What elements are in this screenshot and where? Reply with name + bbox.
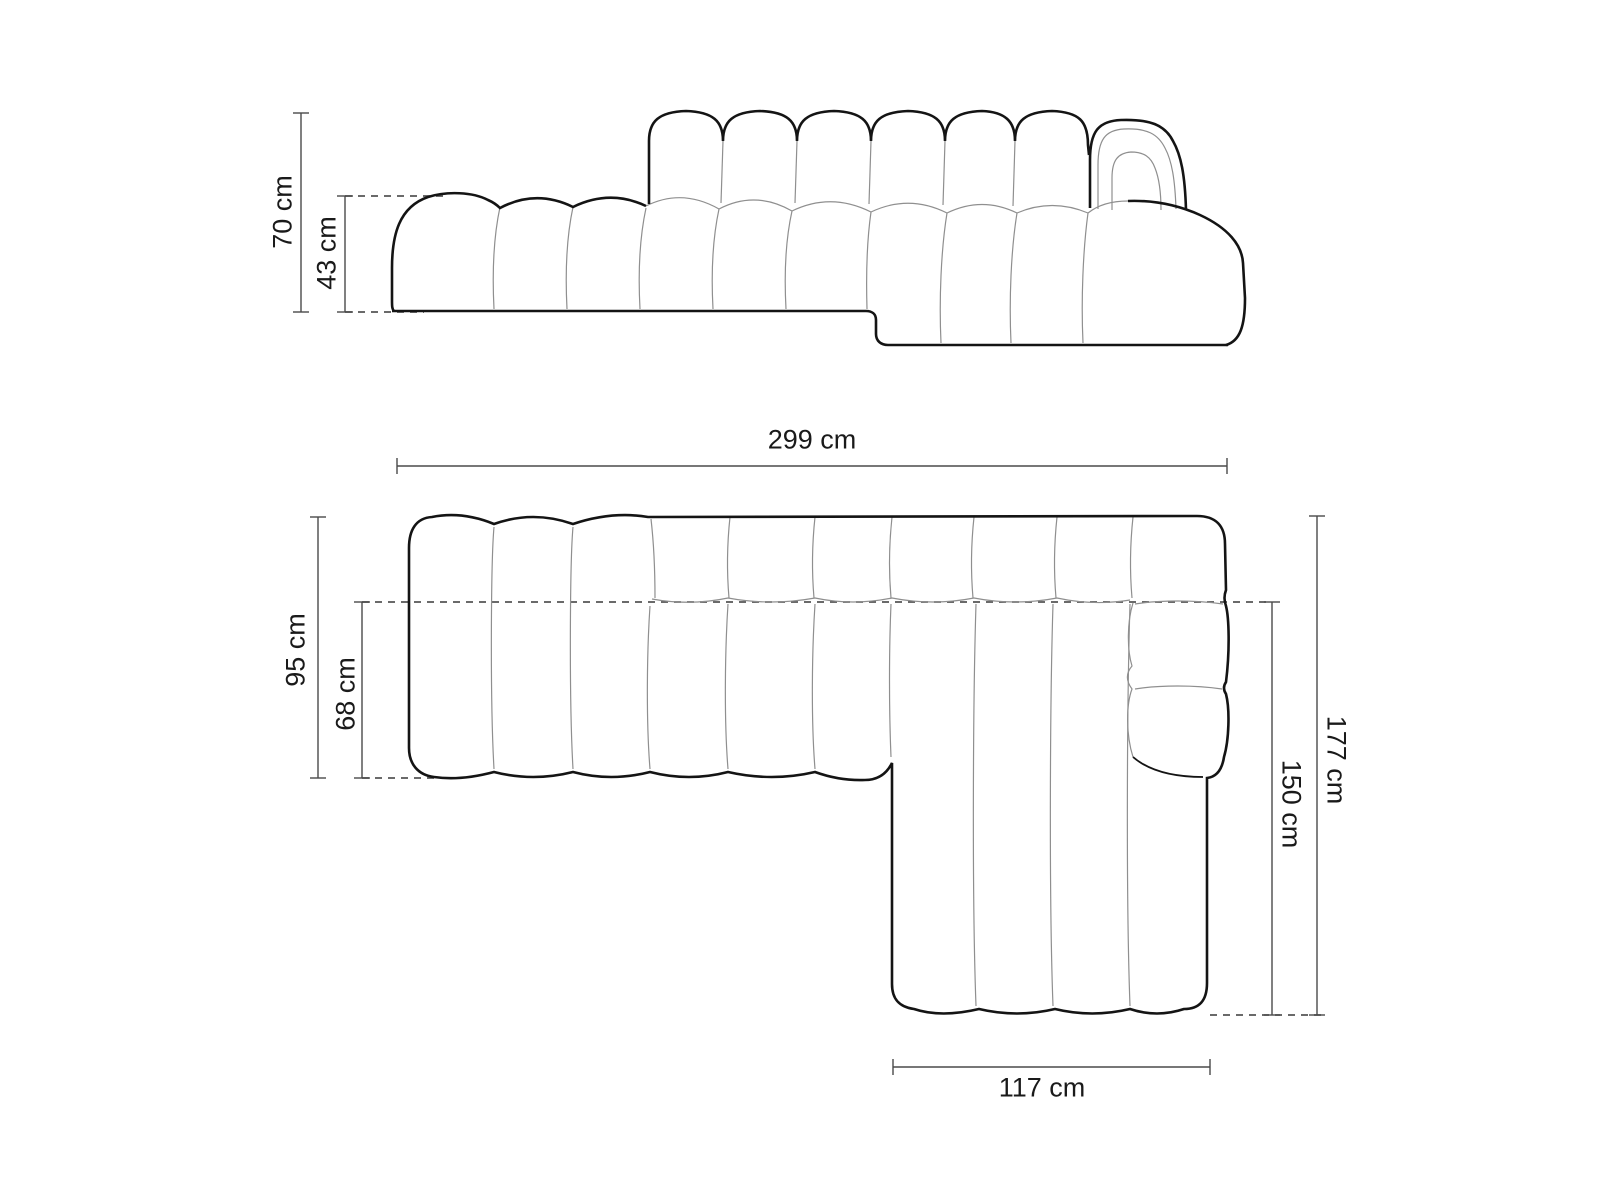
elevation-base-line xyxy=(392,311,1228,345)
dimension-label-chaise-width: 117 cm xyxy=(999,1075,1086,1102)
dimension-line-95cm xyxy=(310,517,326,778)
dimension-lines xyxy=(293,113,1325,1075)
plan-seams xyxy=(491,517,1223,1006)
sofa-dimension-diagram: 70 cm 43 cm 299 cm 95 cm 68 cm 177 cm 15… xyxy=(0,0,1600,1200)
dimension-label-seat-height: 43 cm xyxy=(314,216,341,290)
front-elevation-drawing xyxy=(392,111,1245,345)
dimension-label-total-depth: 177 cm xyxy=(1323,716,1350,805)
dimension-label-seat-depth: 68 cm xyxy=(333,657,360,731)
plan-view-drawing xyxy=(409,515,1229,1013)
plan-outline xyxy=(409,515,1229,1013)
dimension-label-side-depth: 95 cm xyxy=(283,613,310,687)
dimension-label-chaise-length: 150 cm xyxy=(1278,760,1305,849)
diagram-canvas xyxy=(0,0,1600,1200)
elevation-backrest-seams xyxy=(721,141,1015,206)
dimension-label-total-height: 70 cm xyxy=(270,175,297,249)
elevation-right-edge xyxy=(1128,201,1245,345)
elevation-front-seams xyxy=(493,207,1088,343)
elevation-armrest-inner-arcs xyxy=(1098,129,1176,210)
dimension-line-299cm xyxy=(397,458,1227,474)
dimension-label-total-width: 299 cm xyxy=(768,427,857,454)
elevation-seat-outline xyxy=(392,193,646,311)
plan-armrest-bottom xyxy=(1133,757,1203,777)
